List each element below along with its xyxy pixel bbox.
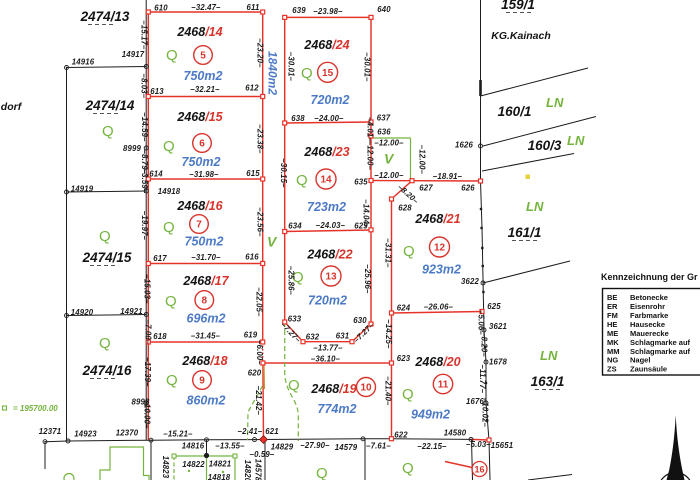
svg-text:–12.00–: –12.00– (374, 171, 404, 180)
svg-text:2468/21: 2468/21 (414, 212, 460, 226)
svg-text:–36.10–: –36.10– (311, 355, 341, 364)
svg-text:2474/13: 2474/13 (80, 9, 130, 24)
svg-text:633: 633 (288, 315, 302, 324)
svg-text:6: 6 (199, 139, 205, 150)
svg-text:KG.Kainach: KG.Kainach (491, 30, 551, 42)
svg-text:–18.91–: –18.91– (433, 172, 463, 181)
svg-text:696m2: 696m2 (187, 312, 226, 326)
svg-text:LN: LN (546, 95, 564, 110)
svg-text:–25.86–: –25.86– (287, 266, 296, 296)
svg-text:611: 611 (247, 3, 260, 12)
svg-text:624: 624 (397, 304, 411, 313)
svg-text:ER: ER (607, 302, 618, 311)
svg-text:617: 617 (153, 254, 167, 263)
svg-text:Farbmarke: Farbmarke (630, 311, 668, 320)
svg-text:Q: Q (163, 138, 175, 155)
svg-text:16: 16 (474, 465, 484, 475)
svg-text:14580: 14580 (444, 429, 467, 438)
svg-text:14829: 14829 (271, 443, 294, 452)
svg-text:Q: Q (316, 465, 328, 480)
svg-text:163/1: 163/1 (531, 374, 565, 389)
svg-text:3622: 3622 (461, 277, 479, 286)
svg-text:–23.98–: –23.98– (313, 7, 343, 16)
svg-text:618: 618 (153, 332, 167, 341)
svg-text:–30.15–: –30.15– (279, 158, 288, 188)
svg-text:627: 627 (419, 184, 433, 193)
svg-text:–13.77–: –13.77– (313, 344, 343, 353)
svg-text:630: 630 (353, 316, 367, 325)
svg-text:–5.03–: –5.03– (466, 440, 491, 449)
svg-text:9: 9 (199, 376, 205, 387)
svg-text:750m2: 750m2 (182, 155, 221, 169)
svg-text:5: 5 (200, 51, 206, 62)
svg-text:14: 14 (320, 175, 332, 186)
svg-text:13: 13 (325, 272, 337, 283)
svg-text:–12.00–: –12.00– (374, 139, 404, 148)
svg-text:–22.15–: –22.15– (417, 442, 447, 451)
svg-text:–23.56–: –23.56– (256, 207, 265, 237)
svg-text:2468/23: 2468/23 (303, 145, 349, 159)
svg-text:14823: 14823 (161, 456, 170, 479)
svg-text:Q: Q (165, 293, 177, 310)
svg-text:–10.00–: –10.00– (143, 399, 152, 429)
svg-text:1840m2: 1840m2 (266, 51, 280, 95)
svg-text:2468/17: 2468/17 (182, 274, 229, 288)
svg-text:LN: LN (567, 133, 585, 148)
svg-text:–23.20–: –23.20– (256, 38, 265, 68)
svg-text:–31.45–: –31.45– (191, 332, 221, 341)
svg-text:Q: Q (402, 460, 414, 477)
svg-text:14918: 14918 (158, 187, 181, 196)
svg-text:161/1: 161/1 (508, 225, 542, 240)
svg-text:14923: 14923 (74, 430, 97, 439)
svg-text:–14.59–: –14.59– (140, 112, 149, 142)
svg-text:–14.25–: –14.25– (384, 319, 393, 349)
svg-text:–13.55–: –13.55– (215, 442, 245, 451)
svg-text:14920: 14920 (71, 308, 94, 317)
svg-text:Q: Q (296, 172, 308, 189)
svg-text:–4.01–: –4.01– (366, 117, 375, 142)
svg-text:622: 622 (394, 431, 408, 440)
svg-text:14820: 14820 (243, 460, 252, 480)
svg-text:Hausecke: Hausecke (630, 320, 665, 329)
svg-text:620: 620 (248, 369, 262, 378)
svg-text:–6.00–: –6.00– (255, 340, 264, 365)
svg-text:2468/24: 2468/24 (303, 38, 349, 52)
svg-text:–21.40–: –21.40– (384, 376, 393, 406)
svg-text:–2.41–: –2.41– (238, 427, 263, 436)
svg-text:= 195700.00: = 195700.00 (13, 404, 58, 413)
svg-text:14821: 14821 (209, 460, 231, 469)
svg-text:613: 613 (150, 87, 164, 96)
svg-text:949m2: 949m2 (411, 408, 450, 422)
svg-text:635: 635 (354, 178, 368, 187)
svg-text:–11.77–: –11.77– (478, 365, 487, 394)
svg-text:160/3: 160/3 (528, 138, 562, 153)
svg-text:–24.00–: –24.00– (314, 114, 344, 123)
svg-text:MK: MK (607, 338, 619, 347)
svg-text:640: 640 (377, 5, 391, 14)
svg-text:160/1: 160/1 (498, 104, 532, 119)
svg-text:–7.00–: –7.00– (143, 320, 152, 345)
svg-text:616: 616 (245, 253, 259, 262)
svg-text:Mauerecke: Mauerecke (630, 329, 669, 338)
svg-text:NG: NG (607, 356, 618, 365)
svg-text:612: 612 (245, 84, 259, 93)
svg-text:2468/14: 2468/14 (176, 25, 222, 39)
svg-text:7: 7 (196, 220, 202, 231)
svg-text:860m2: 860m2 (187, 394, 226, 408)
svg-text:–31.31–: –31.31– (384, 238, 393, 268)
svg-text:–22.05–: –22.05– (255, 287, 264, 317)
svg-text:625: 625 (487, 302, 501, 311)
svg-text:628: 628 (398, 204, 412, 213)
svg-text:–21.42–: –21.42– (254, 386, 263, 416)
svg-text:–30.01–: –30.01– (287, 52, 296, 82)
svg-text:750m2: 750m2 (185, 235, 224, 249)
svg-text:–14.04–: –14.04– (362, 199, 371, 229)
svg-text:12371: 12371 (39, 427, 61, 436)
svg-text:Q: Q (166, 47, 178, 64)
svg-text:637: 637 (377, 114, 391, 123)
svg-text:14916: 14916 (72, 58, 95, 67)
svg-text:632: 632 (306, 333, 320, 342)
svg-text:614: 614 (149, 170, 163, 179)
svg-text:14919: 14919 (71, 185, 94, 194)
svg-text:14921: 14921 (120, 307, 142, 316)
svg-text:–12.00–: –12.00– (418, 145, 427, 175)
svg-text:720m2: 720m2 (311, 93, 350, 107)
svg-text:ZS: ZS (607, 365, 617, 374)
svg-text:Schlagmarke auf: Schlagmarke auf (630, 338, 691, 347)
svg-text:LN: LN (540, 348, 558, 363)
svg-text:8999: 8999 (123, 144, 141, 153)
svg-text:Q: Q (99, 335, 111, 352)
svg-text:LN: LN (526, 199, 544, 214)
svg-text:Q: Q (166, 372, 178, 389)
svg-text:Zaunsäule: Zaunsäule (630, 365, 667, 374)
svg-text:–25.96–: –25.96– (363, 264, 372, 294)
svg-text:HE: HE (607, 320, 617, 329)
svg-text:15651: 15651 (491, 441, 513, 450)
svg-text:14579: 14579 (335, 443, 358, 452)
svg-text:–19.97–: –19.97– (140, 211, 149, 241)
svg-text:639: 639 (292, 6, 306, 15)
svg-text:–32.21–: –32.21– (190, 85, 220, 94)
svg-text:–3.59–: –3.59– (140, 169, 149, 194)
svg-text:Eisenrohr: Eisenrohr (630, 302, 665, 311)
svg-text:–24.03–: –24.03– (316, 221, 346, 230)
svg-text:Q: Q (102, 123, 114, 140)
svg-text:631: 631 (336, 332, 349, 341)
svg-text:2468/18: 2468/18 (181, 354, 227, 368)
svg-text:–30.01–: –30.01– (363, 52, 372, 82)
svg-text:Q: Q (163, 219, 175, 236)
svg-text:2468/15: 2468/15 (176, 110, 223, 124)
svg-text:2468/20: 2468/20 (414, 355, 460, 369)
svg-text:FM: FM (607, 311, 618, 320)
svg-text:BE: BE (607, 293, 617, 302)
svg-text:8: 8 (202, 296, 208, 307)
svg-text:–7.61–: –7.61– (366, 442, 391, 451)
svg-text:Nagel: Nagel (630, 356, 650, 365)
svg-text:923m2: 923m2 (422, 263, 461, 277)
svg-text:159/1: 159/1 (501, 0, 535, 12)
svg-text:–15.03–: –15.03– (143, 274, 152, 304)
svg-text:2474/15: 2474/15 (82, 250, 132, 265)
svg-text:2468/22: 2468/22 (306, 248, 352, 262)
svg-text:–23.38–: –23.38– (256, 124, 265, 154)
svg-text:–31.98–: –31.98– (189, 170, 219, 179)
svg-text:V: V (384, 151, 395, 167)
svg-text:–7.27–: –7.27– (279, 320, 303, 344)
svg-text:ME: ME (607, 329, 618, 338)
svg-text:2468/16: 2468/16 (176, 199, 223, 213)
svg-text:610: 610 (154, 4, 168, 13)
svg-text:Q: Q (402, 386, 414, 403)
svg-text:10: 10 (360, 383, 372, 394)
svg-text:3621: 3621 (489, 322, 507, 331)
svg-text:14917: 14917 (122, 50, 145, 59)
svg-text:–27.90–: –27.90– (300, 441, 330, 450)
svg-text:–10.02–: –10.02– (481, 398, 490, 428)
svg-text:Kennzeichnung der Gr: Kennzeichnung der Gr (601, 272, 698, 282)
svg-text:619: 619 (244, 331, 258, 340)
svg-text:–15.21–: –15.21– (163, 430, 193, 439)
svg-text:750m2: 750m2 (184, 69, 223, 83)
svg-text:14822: 14822 (182, 460, 205, 469)
svg-text:774m2: 774m2 (318, 402, 357, 416)
svg-text:1678: 1678 (489, 358, 507, 367)
svg-text:14818: 14818 (208, 473, 231, 480)
svg-text:Q: Q (99, 228, 111, 245)
svg-text:Betonecke: Betonecke (630, 293, 668, 302)
svg-text:Q: Q (288, 377, 300, 394)
svg-text:2474/14: 2474/14 (85, 98, 135, 113)
svg-text:636: 636 (377, 128, 391, 137)
svg-text:–8.03–: –8.03– (140, 74, 149, 99)
svg-text:2468/19: 2468/19 (310, 382, 356, 396)
svg-text:720m2: 720m2 (308, 294, 347, 308)
svg-text:V: V (267, 234, 278, 250)
svg-text:621: 621 (265, 427, 278, 436)
svg-text:634: 634 (288, 222, 302, 231)
svg-text:–31.70–: –31.70– (191, 253, 221, 262)
svg-text:dorf: dorf (1, 101, 23, 113)
svg-text:–8.20–: –8.20– (480, 332, 489, 357)
svg-text:14816: 14816 (182, 442, 205, 451)
svg-text:626: 626 (461, 184, 475, 193)
svg-text:–15.17–: –15.17– (140, 20, 149, 50)
svg-text:Q: Q (403, 243, 415, 260)
svg-text:2474/16: 2474/16 (82, 363, 132, 378)
svg-text:–12.00–: –12.00– (366, 141, 375, 171)
svg-text:–32.47–: –32.47– (191, 3, 221, 12)
svg-text:615: 615 (246, 169, 260, 178)
svg-text:723m2: 723m2 (307, 200, 346, 214)
svg-text:11: 11 (438, 380, 449, 391)
svg-text:638: 638 (291, 114, 305, 123)
svg-text:1626: 1626 (455, 141, 473, 150)
svg-text:623: 623 (397, 354, 411, 363)
svg-text:Q: Q (301, 65, 313, 82)
svg-text:14578: 14578 (254, 459, 263, 480)
svg-text:12370: 12370 (116, 429, 139, 438)
svg-text:12: 12 (434, 243, 446, 254)
svg-text:–26.06–: –26.06– (424, 303, 454, 312)
svg-text:15: 15 (322, 68, 334, 79)
svg-text:–17.39–: –17.39– (143, 357, 152, 387)
